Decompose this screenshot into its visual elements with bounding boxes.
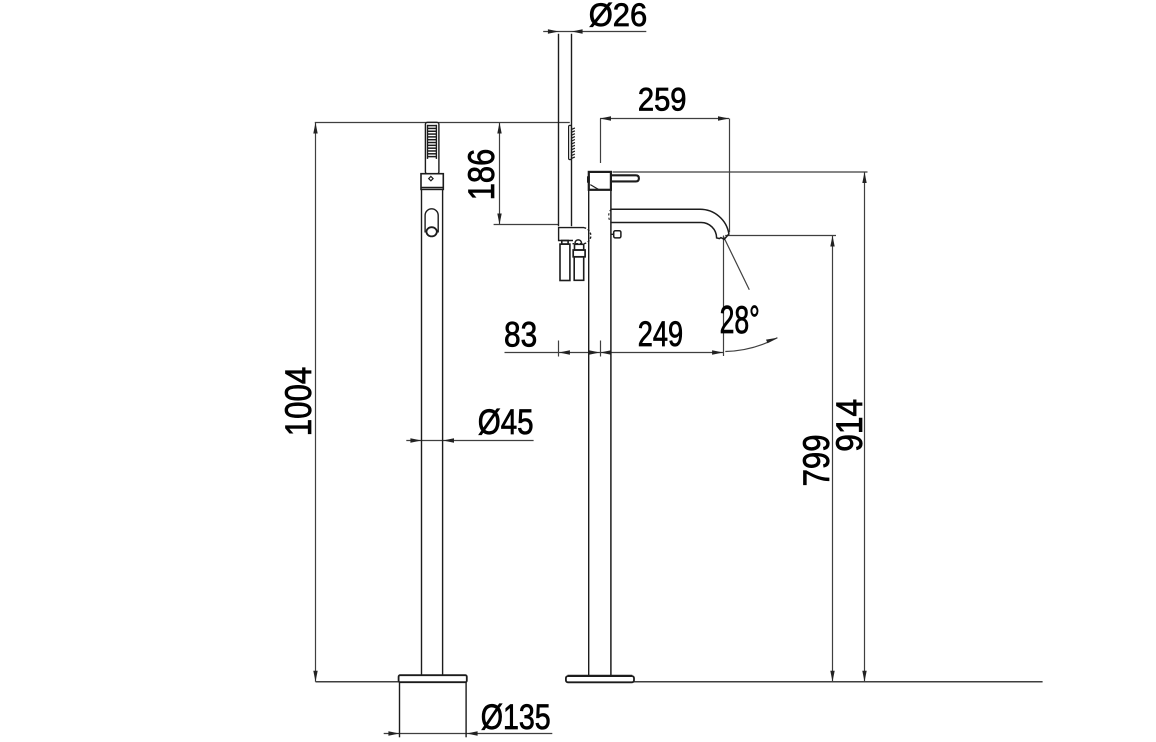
svg-text:914: 914: [829, 399, 870, 452]
svg-text:Ø45: Ø45: [478, 403, 534, 442]
svg-text:Ø26: Ø26: [589, 0, 648, 33]
svg-text:186: 186: [461, 149, 502, 201]
svg-text:83: 83: [504, 316, 537, 355]
svg-text:259: 259: [638, 82, 687, 118]
svg-text:28°: 28°: [720, 299, 760, 342]
svg-text:Ø135: Ø135: [481, 698, 551, 737]
svg-text:249: 249: [638, 315, 683, 354]
svg-text:1004: 1004: [278, 367, 319, 437]
